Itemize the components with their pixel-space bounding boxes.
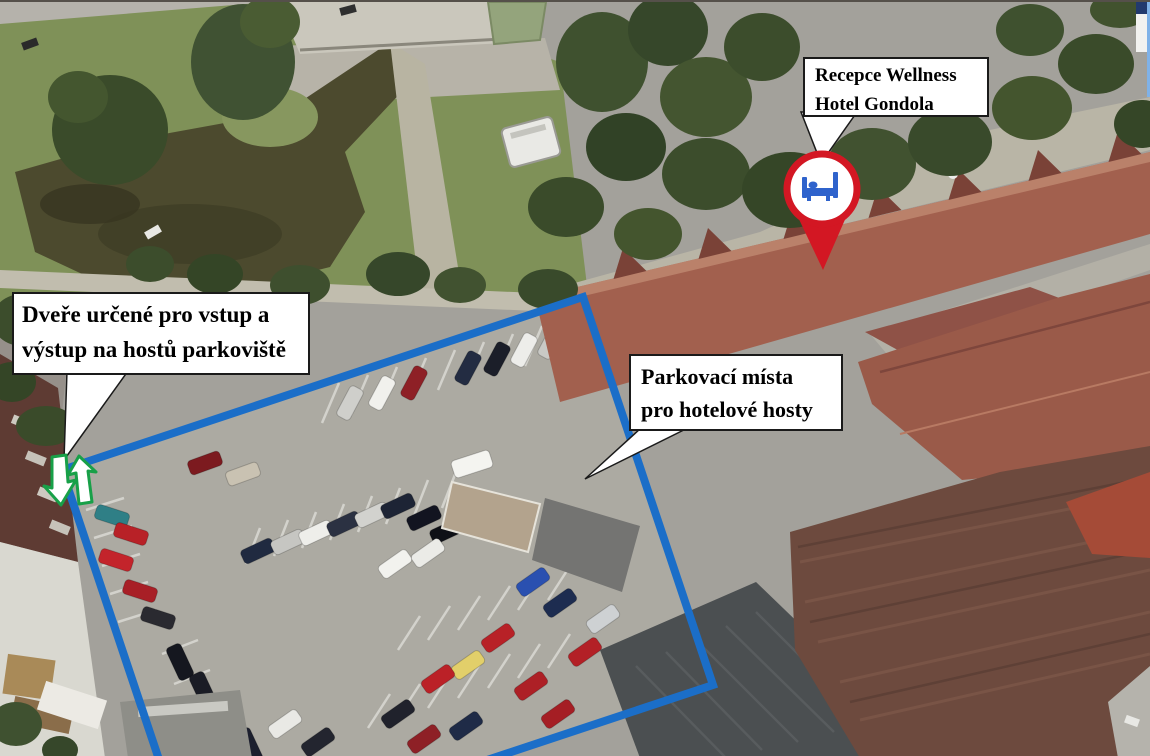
- guest-parking-label: Parkovací místa pro hotelové hosty: [629, 354, 843, 431]
- annotated-aerial-map: Recepce Wellness Hotel Gondola Dveře urč…: [0, 0, 1150, 756]
- door-entry-exit-label: Dveře určené pro vstup a výstup na hostů…: [12, 292, 310, 375]
- door-label-line2: výstup na hostů parkoviště: [22, 333, 300, 368]
- door-label-line1: Dveře určené pro vstup a: [22, 298, 300, 333]
- hotel-reception-label: Recepce Wellness Hotel Gondola: [803, 57, 989, 117]
- door-label-pointer: [64, 371, 128, 460]
- parking-label-line2: pro hotelové hosty: [641, 393, 831, 426]
- hotel-label-line2: Hotel Gondola: [815, 91, 977, 120]
- hotel-label-line1: Recepce Wellness: [815, 62, 977, 91]
- hotel-location-pin: [787, 154, 857, 270]
- parking-label-line1: Parkovací místa: [641, 360, 831, 393]
